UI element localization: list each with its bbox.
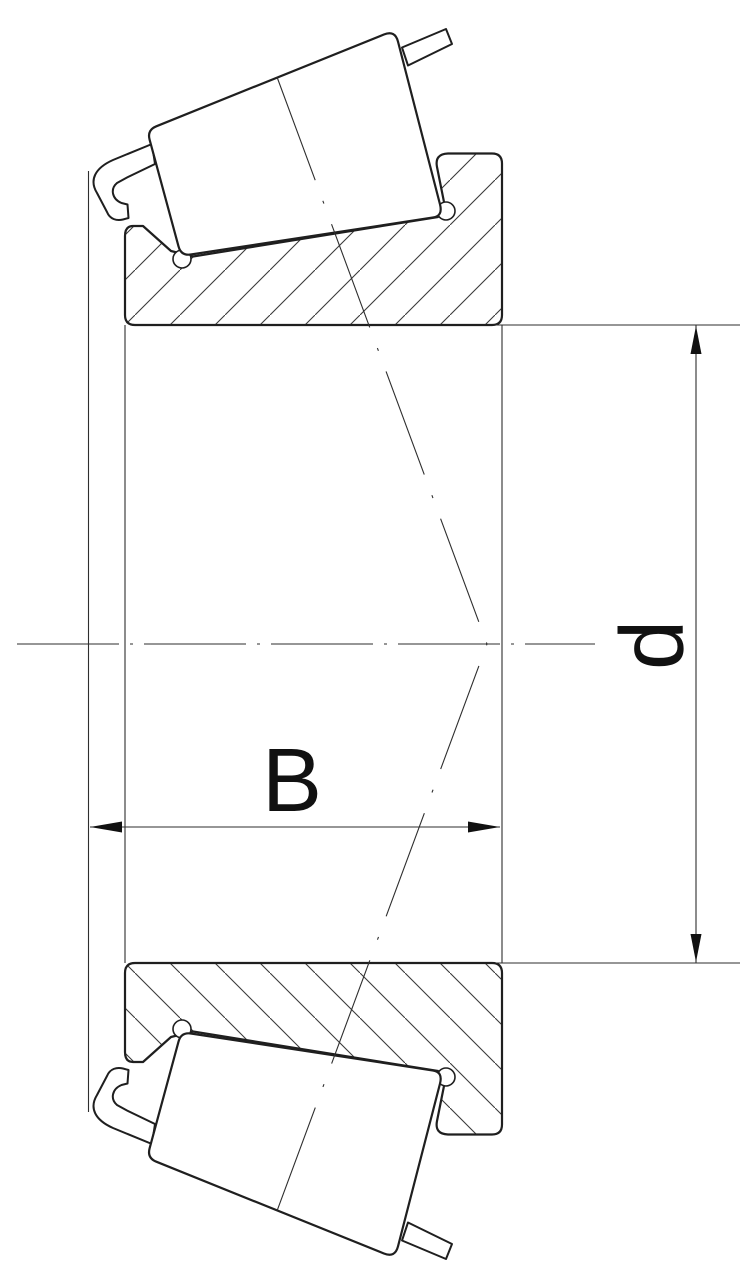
cage-hook <box>94 144 155 220</box>
arrowhead-B-right <box>468 822 500 833</box>
bearing-upper-half <box>94 29 502 325</box>
bearing-lower-half-mirror <box>94 963 502 1259</box>
arrowhead-d-top <box>691 326 702 354</box>
tapered-roller <box>149 33 441 254</box>
cage-bar-tab <box>402 29 452 66</box>
arrowhead-d-bottom <box>691 934 702 962</box>
dimension-label-width-B: B <box>192 733 392 829</box>
arrowhead-B-left <box>90 822 122 833</box>
bearing-drawing-canvas: B d <box>0 0 742 1280</box>
dimension-label-bore-d: d <box>605 545 701 745</box>
